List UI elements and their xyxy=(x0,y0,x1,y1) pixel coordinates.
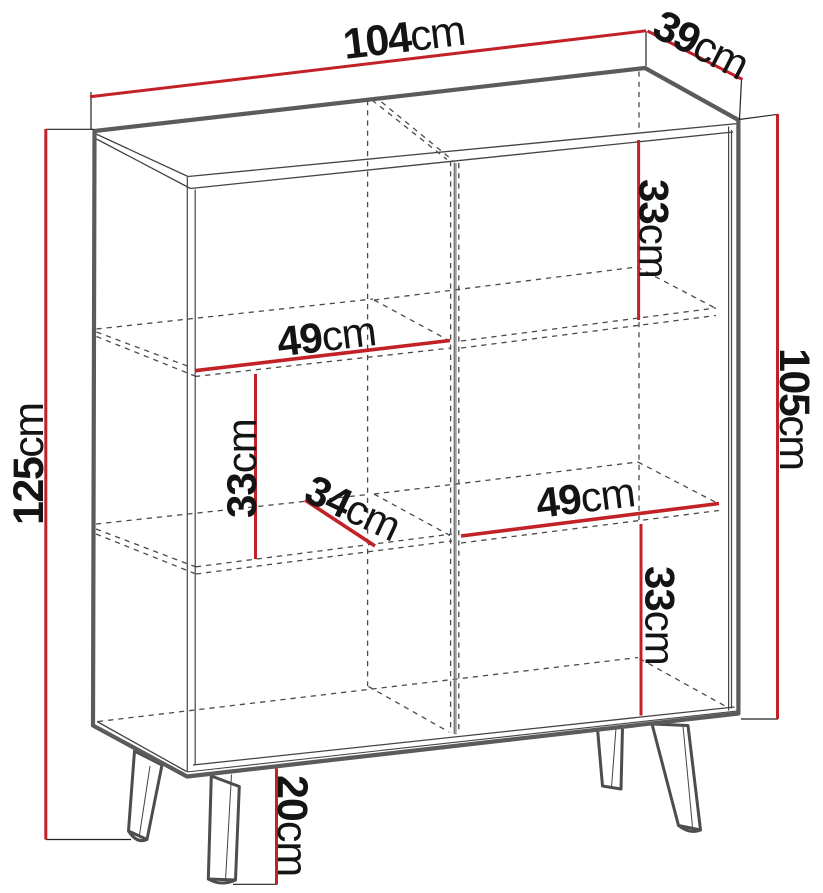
svg-text:33cm: 33cm xyxy=(637,566,684,665)
svg-text:105cm: 105cm xyxy=(770,348,818,470)
svg-text:33cm: 33cm xyxy=(218,419,265,518)
svg-text:33cm: 33cm xyxy=(631,179,678,278)
svg-text:125cm: 125cm xyxy=(5,403,53,525)
svg-text:20cm: 20cm xyxy=(268,775,316,876)
